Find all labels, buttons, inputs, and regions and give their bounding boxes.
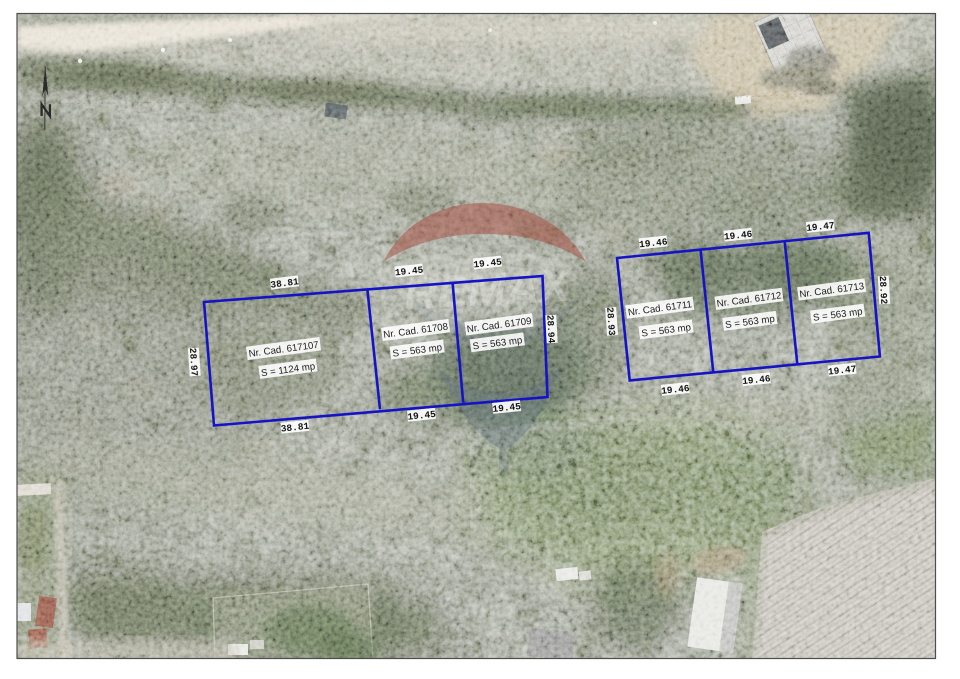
svg-text:28.92: 28.92 <box>877 276 889 305</box>
svg-text:28.93: 28.93 <box>604 307 617 337</box>
svg-text:28.94: 28.94 <box>544 315 556 344</box>
svg-text:28.97: 28.97 <box>187 347 200 377</box>
